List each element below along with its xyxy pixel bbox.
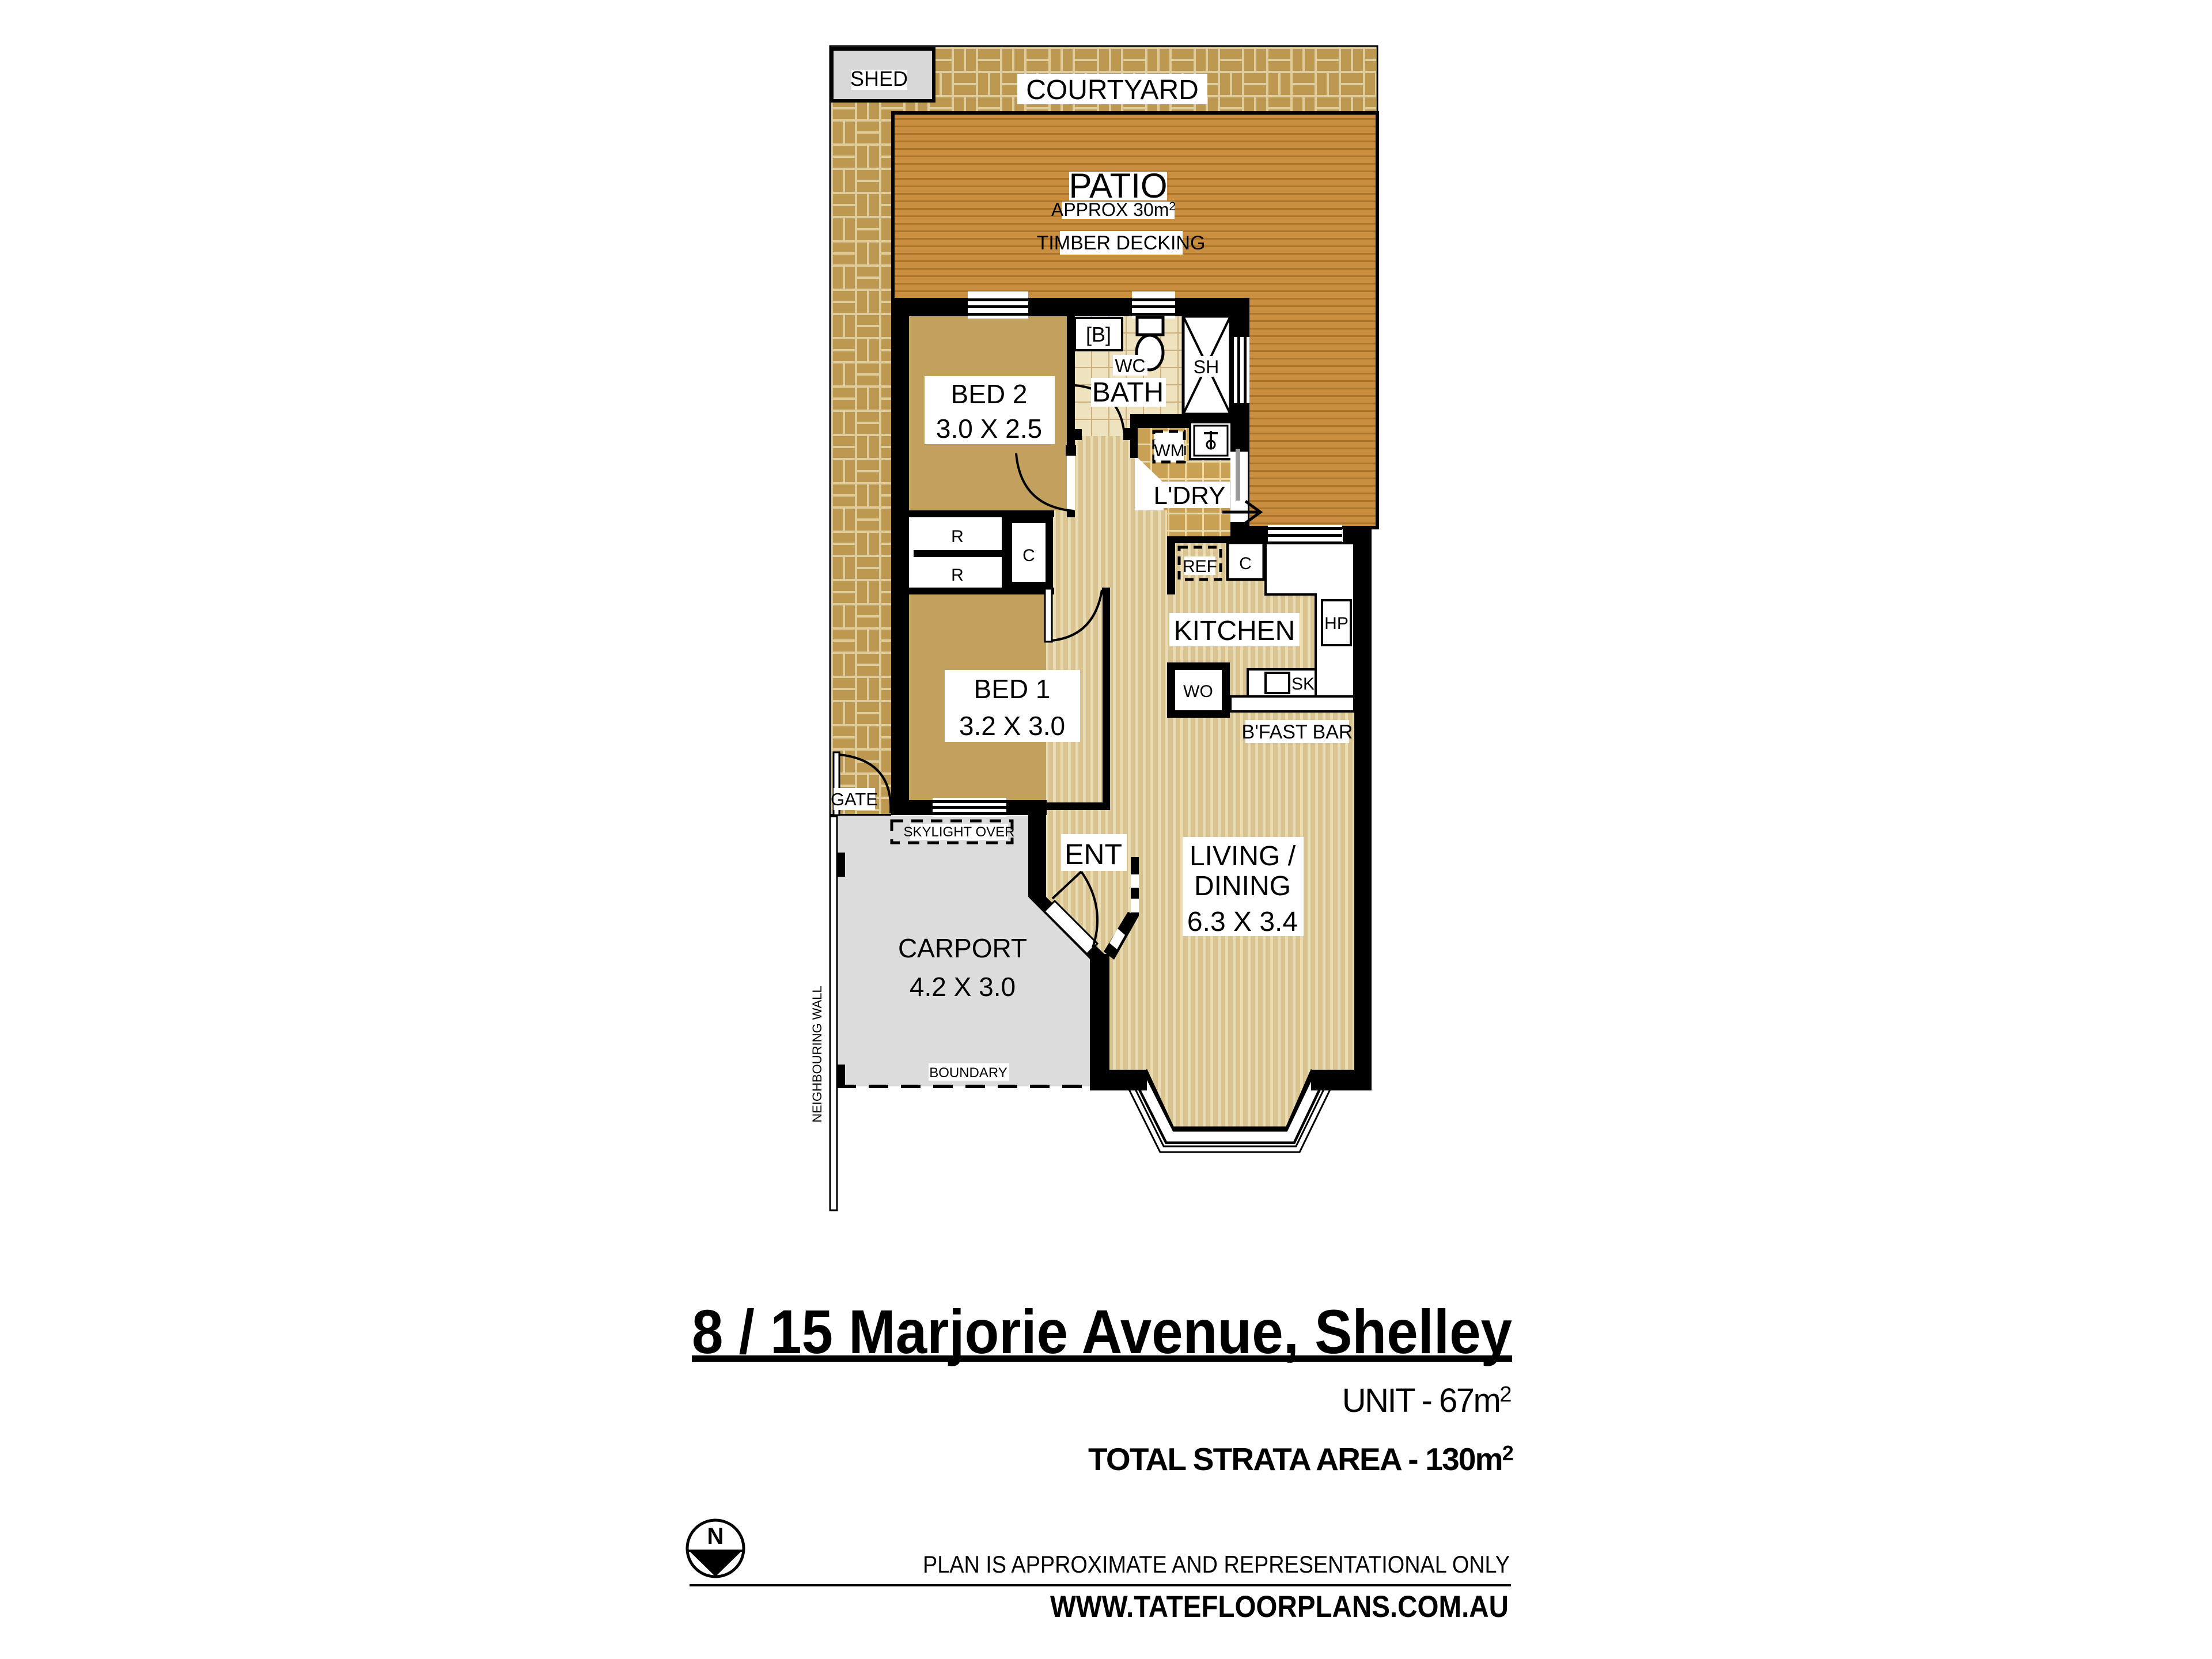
svg-text:BED 2: BED 2 (951, 379, 1028, 409)
svg-text:COURTYARD: COURTYARD (1026, 75, 1199, 105)
svg-text:R: R (951, 566, 964, 585)
svg-text:N: N (707, 1524, 724, 1549)
svg-text:UNIT - 67m2: UNIT - 67m2 (1342, 1382, 1512, 1419)
svg-text:CARPORT: CARPORT (898, 933, 1027, 963)
svg-text:GATE: GATE (831, 789, 878, 809)
svg-text:SH: SH (1194, 357, 1219, 377)
svg-text:B'FAST BAR: B'FAST BAR (1242, 721, 1353, 743)
svg-text:WWW.TATEFLOORPLANS.COM.AU: WWW.TATEFLOORPLANS.COM.AU (1050, 1590, 1509, 1624)
svg-text:DINING: DINING (1194, 871, 1291, 902)
svg-text:SK: SK (1291, 675, 1315, 694)
svg-text:WO: WO (1183, 682, 1213, 701)
svg-text:HP: HP (1324, 614, 1349, 633)
svg-text:3.2 X 3.0: 3.2 X 3.0 (959, 711, 1065, 741)
svg-text:BOUNDARY: BOUNDARY (929, 1065, 1007, 1081)
svg-text:SHED: SHED (850, 67, 908, 90)
svg-text:3.0 X 2.5: 3.0 X 2.5 (936, 414, 1042, 444)
svg-text:SKYLIGHT OVER: SKYLIGHT OVER (904, 824, 1015, 840)
svg-text:REF: REF (1183, 557, 1217, 576)
svg-text:PLAN IS APPROXIMATE AND REPRES: PLAN IS APPROXIMATE AND REPRESENTATIONAL… (923, 1551, 1510, 1578)
svg-text:WM: WM (1154, 441, 1184, 460)
svg-text:APPROX 30m2: APPROX 30m2 (1051, 199, 1176, 220)
svg-text:ENT: ENT (1065, 838, 1122, 870)
svg-text:R: R (951, 527, 964, 546)
svg-text:WC: WC (1115, 355, 1145, 376)
svg-text:BATH: BATH (1092, 377, 1164, 408)
svg-text:L'DRY: L'DRY (1154, 482, 1226, 510)
svg-text:TIMBER DECKING: TIMBER DECKING (1037, 232, 1206, 254)
svg-text:C: C (1239, 554, 1252, 573)
svg-text:LIVING /: LIVING / (1190, 841, 1296, 872)
svg-text:C: C (1022, 546, 1035, 565)
svg-text:[B]: [B] (1086, 323, 1111, 346)
svg-text:TOTAL STRATA AREA - 130m2: TOTAL STRATA AREA - 130m2 (1088, 1441, 1513, 1477)
svg-text:BED 1: BED 1 (974, 674, 1051, 704)
svg-text:4.2 X 3.0: 4.2 X 3.0 (910, 972, 1016, 1002)
svg-text:6.3 X 3.4: 6.3 X 3.4 (1187, 907, 1298, 937)
svg-text:NEIGHBOURING WALL: NEIGHBOURING WALL (810, 986, 824, 1123)
svg-text:KITCHEN: KITCHEN (1174, 616, 1296, 646)
